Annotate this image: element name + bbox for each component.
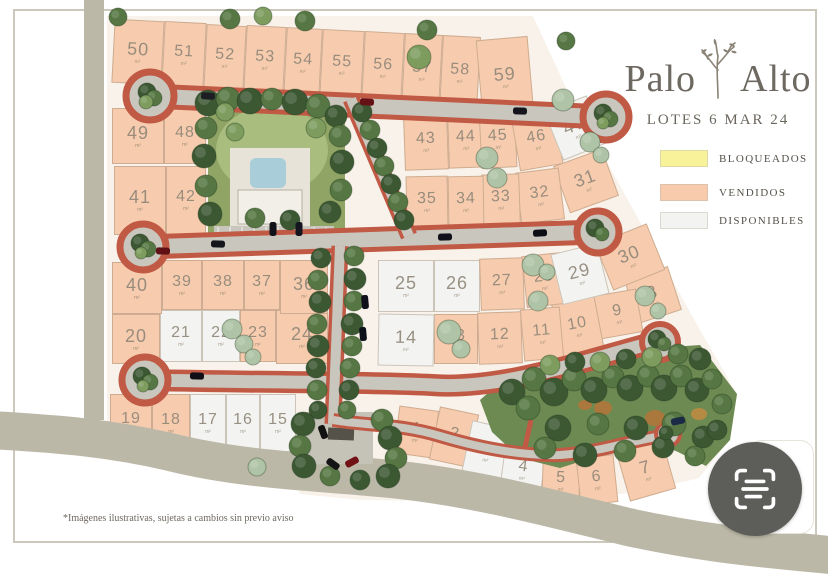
lot-number: 47 [560, 112, 587, 137]
lot-4: 4m² [498, 439, 547, 500]
lot-number: 1 [410, 420, 422, 437]
lot-15: 15m² [260, 394, 296, 452]
lot-area-unit: m² [137, 208, 143, 213]
lot-number: 17 [198, 412, 218, 428]
lot-number: 56 [373, 56, 394, 73]
lot-25: 25m² [378, 260, 434, 312]
lot-number: 36 [293, 275, 315, 293]
lot-37: 37m² [244, 260, 280, 310]
lot-16: 16m² [226, 394, 260, 452]
lot-area-unit: m² [133, 347, 139, 352]
lot-number: 15 [268, 412, 288, 428]
lot-number: 29 [566, 259, 592, 282]
lot-number: 50 [127, 39, 150, 58]
lot-area-unit: m² [299, 69, 305, 74]
lot-7: 7m² [616, 438, 676, 501]
lot-area-unit: m² [299, 345, 305, 350]
lot-32: 32m² [515, 168, 565, 225]
lot-area-unit: m² [482, 458, 489, 464]
lot-number: 22 [211, 325, 231, 341]
lot-12: 12m² [477, 311, 523, 365]
lot-57: 57m² [401, 33, 443, 109]
lot-number: 26 [446, 274, 468, 292]
lot-number: 39 [172, 274, 192, 290]
lot-number: 53 [255, 48, 276, 65]
site-plan-page: 1m²2m²3m²4m²5m²6m²7m²8m²9m²10m²11m²12m²1… [0, 0, 828, 575]
lot-area-unit: m² [134, 59, 140, 64]
lot-11: 11m² [520, 306, 564, 361]
lot-number: 8 [644, 281, 660, 302]
lot-area-unit: m² [135, 144, 141, 149]
scan-document-icon [729, 463, 781, 515]
lot-area-unit: m² [261, 66, 267, 71]
lot-area-unit: m² [218, 343, 224, 348]
lot-area-unit: m² [586, 187, 593, 194]
lot-area-unit: m² [463, 146, 469, 151]
lot-number: 14 [395, 327, 417, 345]
lot-area-unit: m² [595, 486, 601, 492]
lot-area-unit: m² [240, 430, 246, 435]
lot-6: 6m² [576, 454, 619, 506]
lot-number: 11 [532, 322, 552, 340]
status-legend: BLOQUEADOSVENDIDOSDISPONIBLES [660, 150, 820, 240]
lot-number: 35 [417, 190, 437, 206]
lot-area-unit: m² [205, 430, 211, 435]
lot-number: 20 [125, 327, 147, 345]
lot-36: 36m² [280, 260, 328, 314]
lot-area-unit: m² [454, 294, 460, 299]
lot-area-unit: m² [178, 343, 184, 348]
lot-56: 56m² [361, 31, 405, 105]
lot-number: 45 [488, 127, 509, 144]
lot-area-unit: m² [558, 487, 564, 492]
lot-number: 27 [492, 272, 512, 289]
lot-55: 55m² [319, 29, 365, 101]
brand-word-palo: Palo [624, 60, 696, 98]
lot-area-unit: m² [301, 295, 307, 300]
lot-area-unit: m² [412, 438, 418, 444]
brand-word-alto: Alto [740, 60, 812, 98]
legend-item-vendidos: VENDIDOS [660, 184, 820, 201]
lot-39: 39m² [162, 260, 202, 310]
legend-item-bloqueados: BLOQUEADOS [660, 150, 820, 167]
lot-number: 25 [395, 274, 417, 292]
lot-area-unit: m² [403, 294, 409, 299]
lot-49: 49m² [112, 108, 164, 164]
lot-40: 40m² [112, 262, 162, 314]
lot-38: 38m² [202, 260, 244, 310]
lot-number: 19 [121, 411, 141, 427]
lot-area-unit: m² [423, 148, 429, 153]
lot-number: 46 [525, 127, 547, 146]
lot-33: 33m² [481, 173, 521, 226]
legend-swatch-vendidos [660, 184, 708, 201]
lot-number: 7 [637, 456, 653, 476]
lot-area-unit: m² [616, 320, 623, 326]
lot-13: 13m² [434, 314, 478, 364]
lot-52: 52m² [203, 24, 246, 92]
legend-label-disponibles: DISPONIBLES [719, 215, 805, 227]
lot-number: 31 [571, 165, 598, 189]
lot-17: 17m² [190, 394, 226, 452]
lot-area-unit: m² [134, 296, 140, 301]
lot-number: 9 [611, 302, 624, 319]
lot-number: 10 [566, 314, 588, 333]
lot-21: 21m² [160, 310, 202, 362]
lot-27: 27m² [479, 257, 525, 311]
plan-subtitle: LOTES 6 MAR 24 [606, 112, 828, 129]
lot-number: 5 [556, 469, 566, 485]
lot-number: 58 [450, 61, 471, 78]
lot-number: 6 [591, 468, 603, 485]
lot-area-unit: m² [379, 74, 385, 79]
lot-number: 21 [171, 325, 191, 341]
lot-number: 16 [233, 412, 253, 428]
lot-area-unit: m² [403, 347, 409, 352]
lot-area-unit: m² [535, 146, 542, 152]
lot-area-unit: m² [418, 77, 424, 82]
lot-area-unit: m² [168, 430, 174, 435]
lot-area-unit: m² [579, 281, 586, 287]
lot-area-unit: m² [575, 134, 582, 141]
lot-53: 53m² [243, 25, 287, 95]
lot-area-unit: m² [182, 143, 188, 148]
lot-number: 24 [291, 325, 313, 343]
lot-area-unit: m² [180, 61, 186, 66]
lot-number: 40 [126, 276, 148, 294]
lot-area-unit: m² [128, 429, 134, 434]
lot-area-unit: m² [179, 292, 185, 297]
lot-number: 43 [416, 130, 436, 147]
lot-area-unit: m² [275, 430, 281, 435]
lot-18: 18m² [152, 394, 190, 452]
lot-area-unit: m² [630, 263, 637, 270]
legend-swatch-bloqueados [660, 150, 708, 167]
tree-logo-icon [698, 38, 738, 100]
legend-swatch-disponibles [660, 212, 708, 229]
lot-area-unit: m² [542, 286, 548, 292]
lot-number: 51 [174, 43, 195, 60]
lot-24: 24m² [276, 310, 328, 364]
lot-area-unit: m² [540, 340, 546, 345]
legend-label-bloqueados: BLOQUEADOS [719, 153, 808, 165]
lot-42: 42m² [166, 166, 206, 235]
lot-51: 51m² [161, 21, 206, 89]
lot-area-unit: m² [653, 301, 660, 308]
lot-area-unit: m² [576, 333, 583, 339]
lot-22: 22m² [202, 310, 240, 362]
lot-area-unit: m² [503, 84, 509, 89]
lot-number: 33 [491, 188, 511, 205]
lot-14: 14m² [378, 314, 435, 367]
lot-area-unit: m² [453, 346, 459, 351]
lot-5: 5m² [541, 455, 581, 506]
lot-area-unit: m² [538, 202, 544, 208]
legend-label-vendidos: VENDIDOS [719, 187, 786, 199]
lot-area-unit: m² [221, 64, 227, 69]
lot-48: 48m² [164, 108, 206, 164]
lot-area-unit: m² [255, 343, 261, 348]
lot-area-unit: m² [449, 443, 456, 449]
lot-area-unit: m² [499, 290, 505, 295]
lot-number: 32 [529, 183, 551, 201]
lot-19: 19m² [110, 394, 152, 450]
lot-area-unit: m² [338, 71, 344, 76]
lot-number: 57 [412, 59, 433, 76]
lot-number: 44 [456, 128, 476, 145]
lot-number: 12 [490, 326, 510, 343]
lot-number: 37 [252, 274, 272, 290]
lot-area-unit: m² [456, 79, 462, 84]
lot-59: 59m² [476, 36, 535, 118]
lot-number: 23 [248, 325, 268, 341]
lot-number: 49 [127, 124, 149, 142]
lot-41: 41m² [114, 166, 166, 235]
legend-item-disponibles: DISPONIBLES [660, 212, 820, 229]
lot-34: 34m² [448, 176, 485, 229]
lot-20: 20m² [112, 314, 160, 364]
lot-number: 28 [533, 268, 554, 286]
lot-35: 35m² [406, 176, 449, 229]
lot-area-unit: m² [220, 292, 226, 297]
lot-number: 18 [161, 412, 181, 428]
lot-number: 41 [129, 188, 151, 206]
lot-number: 4 [517, 458, 529, 475]
lot-number: 38 [213, 274, 233, 290]
lot-number: 13 [446, 328, 466, 344]
lot-43: 43m² [403, 113, 449, 171]
lot-number: 54 [293, 51, 314, 68]
lot-area-unit: m² [183, 207, 189, 212]
lot-area-unit: m² [645, 476, 652, 482]
lot-number: 59 [493, 64, 517, 84]
disclaimer-text: *Imágenes ilustrativas, sujetas a cambio… [63, 513, 294, 524]
lot-26: 26m² [434, 260, 480, 312]
lot-number: 34 [456, 190, 476, 206]
lot-area-unit: m² [498, 206, 504, 211]
lot-number: 48 [175, 125, 195, 141]
lot-number: 55 [332, 53, 353, 70]
lot-area-unit: m² [463, 208, 469, 213]
lot-area-unit: m² [497, 344, 503, 349]
lot-area-unit: m² [495, 145, 501, 150]
lot-58: 58m² [439, 35, 481, 111]
brand-logo: Palo Alto [606, 38, 828, 100]
lot-number: 52 [215, 46, 236, 63]
lot-number: 30 [615, 241, 642, 266]
lot-area-unit: m² [424, 208, 430, 213]
lot-23: 23m² [240, 310, 276, 362]
lot-number: 2 [448, 425, 461, 443]
lot-54: 54m² [283, 27, 323, 99]
lot-area-unit: m² [519, 476, 525, 482]
scan-button[interactable] [708, 442, 802, 536]
lot-number: 3 [481, 440, 494, 458]
lot-50: 50m² [111, 19, 164, 86]
lot-number: 42 [176, 189, 196, 205]
lot-area-unit: m² [259, 292, 265, 297]
